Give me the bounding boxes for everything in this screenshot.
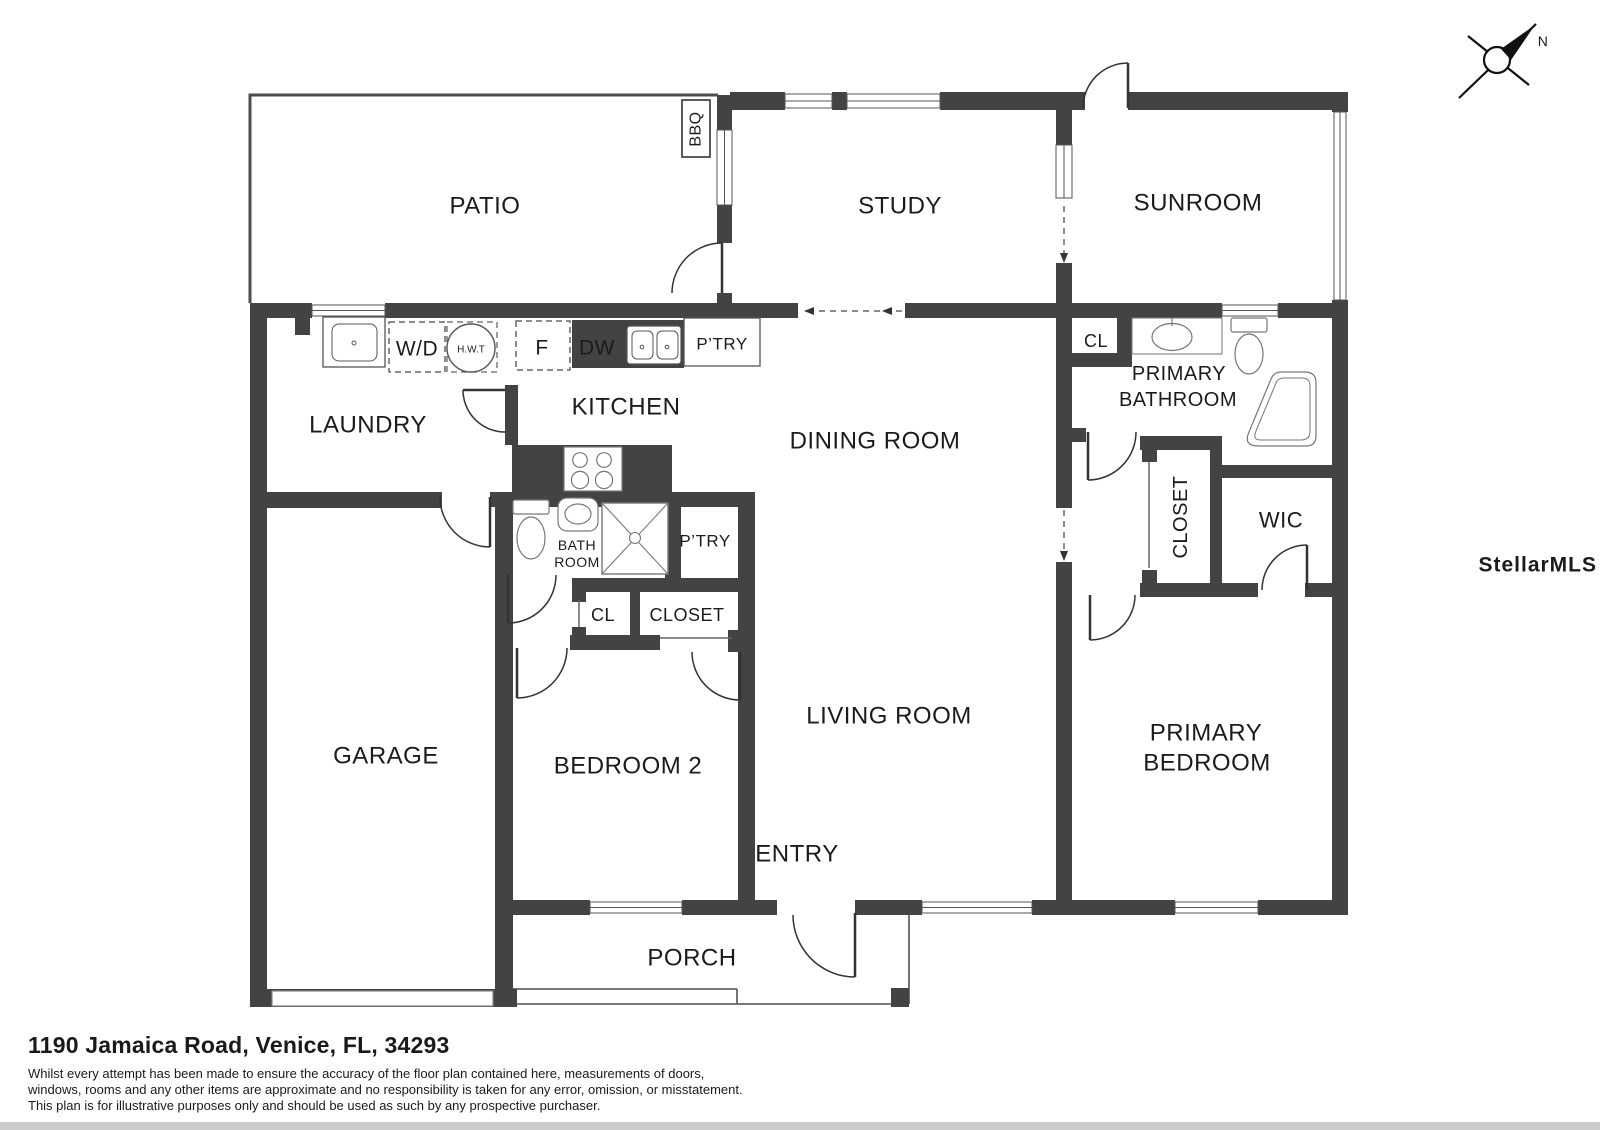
room-label-porch: PORCH [647, 945, 736, 972]
address-line: 1190 Jamaica Road, Venice, FL, 34293 [28, 1032, 1128, 1059]
disclaimer-line-2: windows, rooms and any other items are a… [28, 1082, 1128, 1098]
window [1222, 305, 1278, 316]
room-label-sunroom: SUNROOM [1134, 190, 1263, 217]
room-label-entry: ENTRY [755, 841, 838, 868]
label-washer-dryer: W/D [396, 338, 438, 361]
bottom-edge-bar [0, 1122, 1600, 1130]
room-label-primary-bath-1: PRIMARY [1132, 363, 1226, 385]
stove-icon [564, 447, 622, 491]
window [922, 902, 1032, 913]
label-fridge: F [535, 337, 548, 360]
window [590, 902, 682, 913]
room-label-garage: GARAGE [333, 743, 439, 770]
room-label-primary-bedroom-2: BEDROOM [1143, 750, 1271, 777]
room-label-wic: WIC [1259, 508, 1303, 533]
door [1083, 63, 1128, 108]
north-label: N [1538, 33, 1549, 49]
room-label-living: LIVING ROOM [806, 703, 972, 730]
label-hot-water-tank: H.W.T [457, 345, 485, 356]
laundry-sink-icon [323, 317, 385, 367]
room-label-kitchen: KITCHEN [572, 394, 681, 421]
window [847, 94, 940, 108]
door [672, 243, 722, 293]
toilet-icon [513, 500, 549, 559]
room-label-study: STUDY [858, 193, 942, 220]
door [793, 913, 855, 977]
label-pantry-kitchen: P’TRY [696, 335, 747, 354]
window [1175, 902, 1258, 913]
door [517, 648, 567, 698]
room-label-cl-hall: CL [591, 605, 615, 625]
labels-layer: PATIO STUDY SUNROOM LAUNDRY KITCHEN DINI… [309, 111, 1303, 971]
watermark: StellarMLS [1478, 554, 1597, 577]
room-label-patio: PATIO [450, 193, 521, 220]
window [1334, 112, 1346, 300]
door [508, 575, 556, 623]
room-label-closet-primary: CLOSET [1170, 475, 1192, 558]
primary-sink-icon [1132, 318, 1222, 354]
door [692, 652, 740, 700]
disclaimer-line-3: This plan is for illustrative purposes o… [28, 1098, 1128, 1114]
opening-arrows [804, 206, 1068, 561]
room-label-dining: DINING ROOM [790, 428, 961, 455]
door [1088, 432, 1136, 480]
label-pantry-hall: P’TRY [679, 532, 730, 551]
garage-door [272, 991, 493, 1006]
window [1056, 145, 1072, 198]
room-label-bedroom2: BEDROOM 2 [554, 753, 703, 780]
window [785, 94, 832, 108]
shower-icon [602, 503, 668, 574]
window [312, 305, 385, 316]
door [1090, 595, 1135, 640]
footer: 1190 Jamaica Road, Venice, FL, 34293 Whi… [28, 1032, 1128, 1114]
room-label-closet-hall: CLOSET [649, 605, 724, 625]
window [717, 130, 732, 205]
room-label-laundry: LAUNDRY [309, 412, 427, 439]
door [1262, 545, 1307, 590]
room-label-cl-bath: CL [1084, 331, 1108, 351]
fixtures-layer [272, 100, 1316, 1006]
room-label-primary-bath-2: BATHROOM [1119, 389, 1237, 411]
label-dishwasher: DW [579, 337, 615, 360]
toilet-icon [1231, 318, 1267, 374]
compass: N [1459, 24, 1548, 98]
label-bbq: BBQ [688, 111, 705, 146]
room-label-bath-1: BATH [558, 537, 596, 553]
bathtub-icon [1247, 372, 1316, 446]
bath-sink-icon [558, 498, 598, 531]
disclaimer-line-1: Whilst every attempt has been made to en… [28, 1066, 1128, 1082]
room-label-bath-2: ROOM [554, 554, 600, 570]
room-label-primary-bedroom-1: PRIMARY [1150, 720, 1262, 747]
door [463, 390, 505, 432]
floorplan-page: N StellarMLS PATIO STUDY SUNROOM LAUNDRY… [0, 0, 1600, 1130]
door [440, 497, 490, 547]
floorplan-svg: N StellarMLS PATIO STUDY SUNROOM LAUNDRY… [0, 0, 1600, 1130]
kitchen-sink-icon [627, 326, 681, 364]
